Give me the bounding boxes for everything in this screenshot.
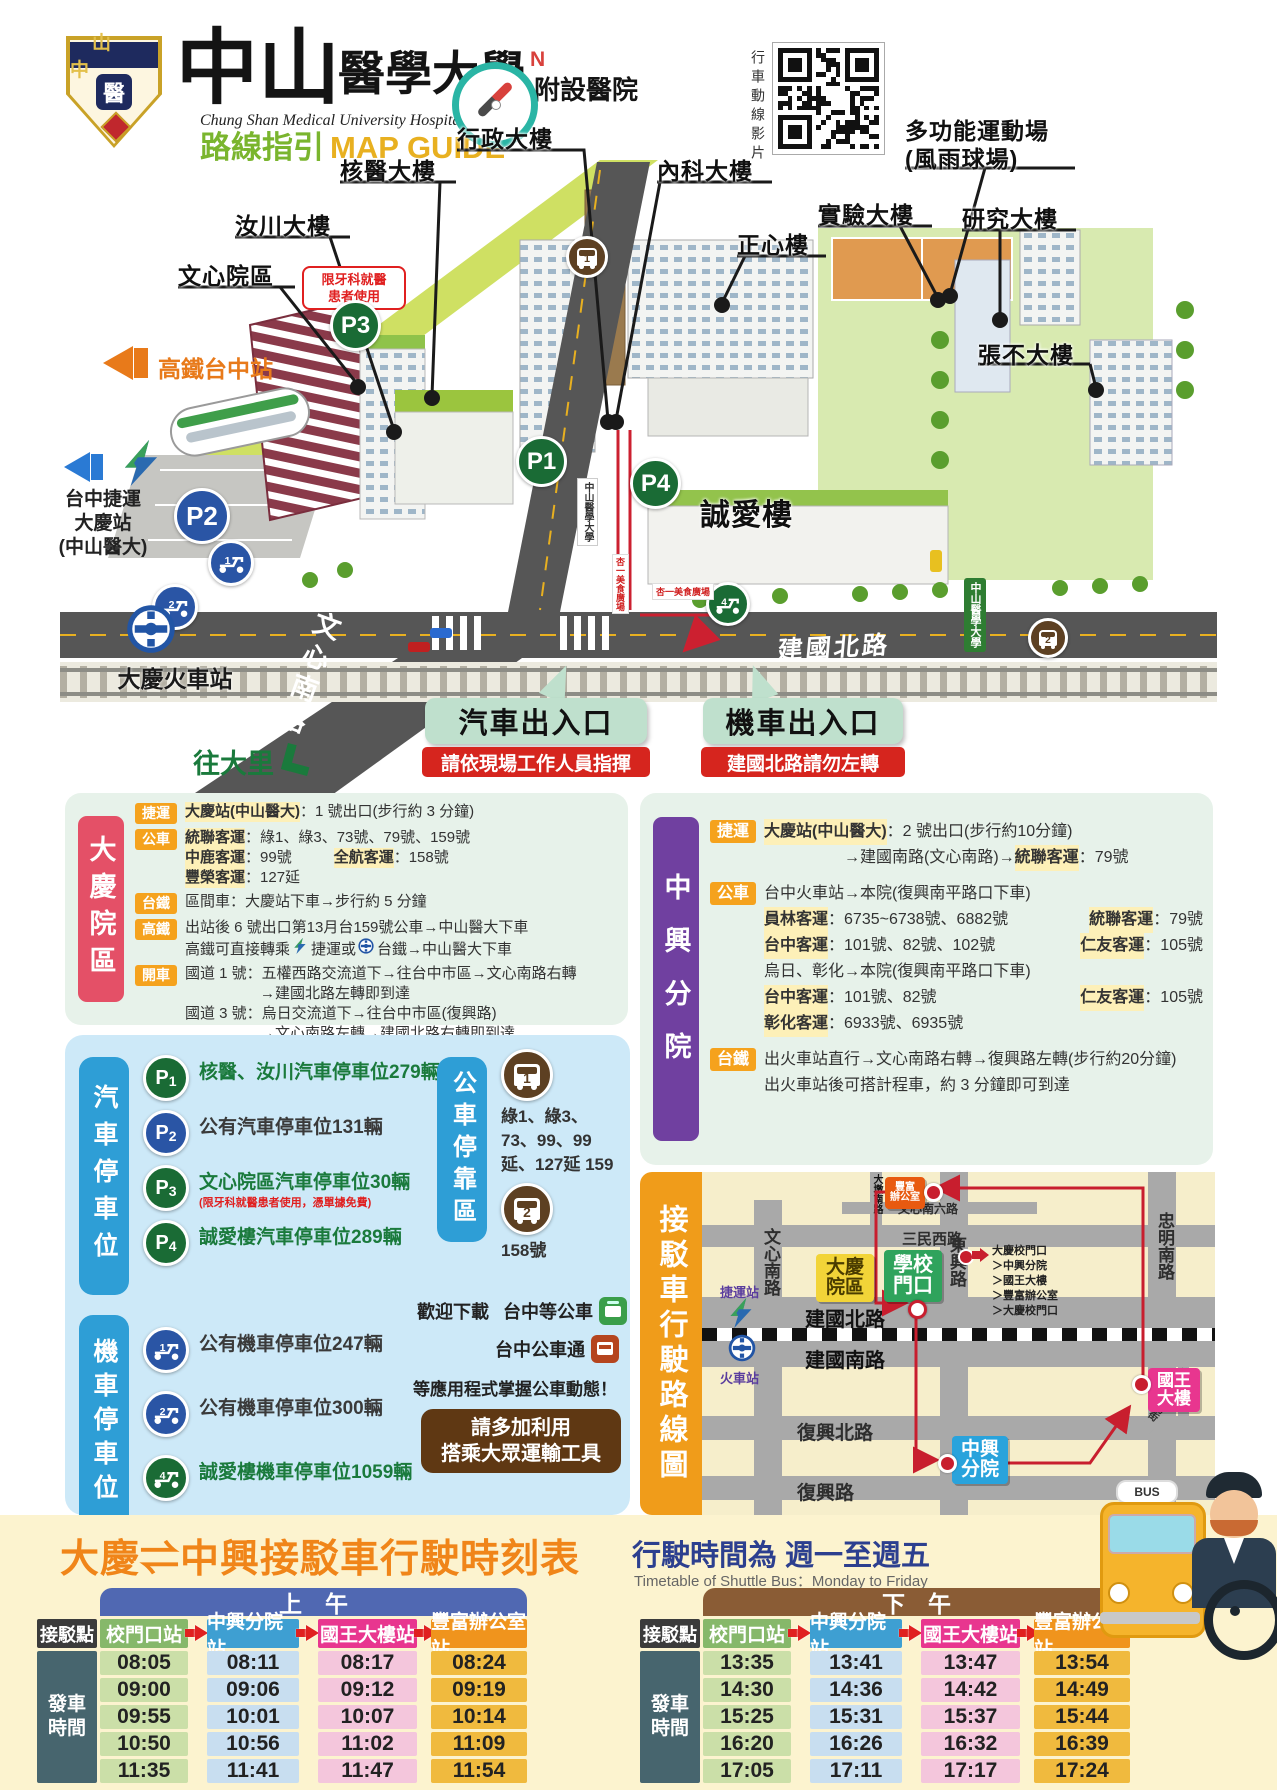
transit-line: →建國南路(文心南路)→統聯客運：79號 <box>764 845 1203 871</box>
parking-p1-marker: P1 <box>516 436 567 487</box>
parking-item-text: 公有汽車停車位131輛 <box>199 1117 383 1139</box>
qr-module <box>874 91 879 96</box>
transit-text: 中鹿客運 <box>185 848 245 868</box>
time-cell: 09:00 <box>100 1678 188 1702</box>
transit-text: 大慶站(中山醫大) <box>185 802 300 822</box>
time-cell: 08:24 <box>431 1651 527 1675</box>
app-icon-bus-waiting <box>599 1297 627 1325</box>
transit-text: 員林客運 <box>764 907 828 933</box>
time-cell: 16:20 <box>703 1732 791 1756</box>
transit-line: 大慶站(中山醫大)：2 號出口(步行約10分鐘) <box>764 819 1203 845</box>
label-admin-building: 行政大樓 <box>457 120 553 154</box>
parking-p3-marker: P3 <box>330 300 381 351</box>
app-icon-bus-pass <box>591 1335 619 1363</box>
transit-text: 仁友客運 <box>1080 933 1144 959</box>
transit-text: 出站後 6 號出口第13月台159號公車→中山醫大下車 <box>185 918 528 938</box>
stop-point-header: 接駁點 <box>640 1619 700 1648</box>
hospital-title-zh-suffix: 附設醫院 <box>534 78 638 104</box>
time-cell: 15:37 <box>921 1705 1020 1729</box>
compass-n-label: N <box>530 48 545 72</box>
time-cell: 11:09 <box>431 1732 527 1756</box>
transit-lines: 區間車：大慶站下車→步行約 5 分鐘 <box>185 892 620 912</box>
station-column-header: 中興分院站 <box>810 1619 902 1648</box>
station-column-header: 校門口站 <box>703 1619 791 1648</box>
departure-line1: 發車 <box>651 1693 689 1717</box>
time-cell: 08:11 <box>207 1651 299 1675</box>
timetable-title: 大慶⇌中興接駁車行駛時刻表 <box>60 1528 580 1584</box>
transit-text: 區間車：大慶站下車→步行約 5 分鐘 <box>185 892 427 912</box>
transit-line: 出站後 6 號出口第13月台159號公車→中山醫大下車 <box>185 918 620 938</box>
time-cell: 17:11 <box>810 1759 902 1783</box>
label-zhangbu-building: 張不大樓 <box>978 336 1074 370</box>
qr-module <box>821 72 826 77</box>
parking-item-text: 公有機車停車位300輛 <box>199 1398 383 1420</box>
bus-stop-2-icon: 2 <box>1028 618 1068 658</box>
car-entrance-note: 請依現場工作人員指揮 <box>422 747 650 777</box>
route-arrow-icon <box>899 1625 923 1641</box>
time-cell: 17:05 <box>703 1759 791 1783</box>
label-nuclear-building: 核醫大樓 <box>340 152 436 186</box>
transit-text: →建國北路左轉即到達 <box>185 984 410 1004</box>
transit-text: ：99號 <box>245 848 292 868</box>
shuttle-route-legend: 大慶校門口＞中興分院＞國王大樓＞豐富辦公室＞大慶校門口 <box>992 1244 1058 1319</box>
station-column-header: 國王大樓站 <box>921 1619 1020 1648</box>
mrt-station-label: 台中捷運大慶站(中山醫大) <box>28 488 178 560</box>
bus-stop-2-marker: 2 <box>1028 618 1068 658</box>
station-column-header: 中興分院站 <box>207 1619 299 1648</box>
transit-text: 大慶站(中山醫大) <box>764 819 887 845</box>
time-cell: 11:54 <box>431 1759 527 1783</box>
transit-row: 高鐵出站後 6 號出口第13月台159號公車→中山醫大下車高鐵可直接轉乘捷運或台… <box>135 918 620 960</box>
transit-row: 公車台中火車站→本院(復興南平路口下車)員林客運：6735~6738號、6882… <box>710 881 1203 1037</box>
transit-lines: 出火車站直行→文心南路右轉→復興路左轉(步行約20分鐘)出火車站後可搭計程車，約… <box>764 1047 1203 1099</box>
parking-info-panel: 汽車停車位 P1核醫、汝川汽車停車位279輛P2公有汽車停車位131輛P3文心院… <box>65 1035 630 1515</box>
time-cell: 10:56 <box>207 1732 299 1756</box>
qr-module <box>826 67 831 72</box>
qr-module <box>826 101 831 106</box>
transit-text: ：127延 <box>245 868 300 888</box>
parking-p3-icon: P3 <box>143 1165 189 1211</box>
transit-text: 國道 1 號：五權西路交流道下→往台中市區→文心南路右轉 <box>185 964 577 984</box>
zhongxing-box-title: 中興分院 <box>653 817 699 1141</box>
parking-item-text: 文心院區汽車停車位30輛(限牙科就醫患者使用，憑單據免費) <box>199 1172 410 1210</box>
car-parking-item: P1核醫、汝川汽車停車位279輛 <box>143 1055 443 1101</box>
driver-figure <box>1188 1472 1277 1642</box>
transit-line: 大慶站(中山醫大)：1 號出口(步行約 3 分鐘) <box>185 802 620 822</box>
transit-text: 台中客運 <box>764 985 828 1011</box>
transit-text: 彰化客運 <box>764 1011 828 1037</box>
transit-text: 台中客運 <box>764 933 828 959</box>
svg-text:4: 4 <box>159 1470 165 1482</box>
legend-item: ＞大慶校門口 <box>992 1304 1058 1319</box>
transit-mode-tag: 開車 <box>135 965 177 986</box>
bus-stop-entry: 2158號 <box>501 1183 623 1263</box>
timetable-afternoon: 下 午接駁點校門口站中興分院站國王大樓站豐富辦公室站發車時間13:3513:41… <box>640 1588 1130 1788</box>
legend-item: 大慶校門口 <box>992 1244 1058 1259</box>
transit-text: ：101號、82號、102號 <box>828 933 995 959</box>
tra-inline-icon <box>358 938 375 955</box>
time-cell: 10:14 <box>431 1705 527 1729</box>
transit-text: 出火車站直行→文心南路右轉→復興路左轉(步行約20分鐘) <box>764 1047 1176 1073</box>
station-column-header: 豐富辦公室站 <box>431 1619 527 1648</box>
transit-line: 高鐵可直接轉乘捷運或台鐵→中山醫大下車 <box>185 938 620 960</box>
transit-row: 台鐵出火車站直行→文心南路右轉→復興路左轉(步行約20分鐘)出火車站後可搭計程車… <box>710 1047 1203 1099</box>
label-wenxin-campus: 文心院區 <box>178 257 274 291</box>
stop-king-building: 國王大樓 <box>1148 1368 1200 1412</box>
qr-module <box>836 72 841 77</box>
qr-module <box>836 82 841 87</box>
time-cell: 11:35 <box>100 1759 188 1783</box>
transit-row: 開車國道 1 號：五權西路交流道下→往台中市區→文心南路右轉 →建國北路左轉即到… <box>135 964 620 1044</box>
time-cell: 14:42 <box>921 1678 1020 1702</box>
svg-text:1: 1 <box>224 555 230 567</box>
parking-item-text: 公有機車停車位247輛 <box>199 1334 383 1356</box>
parking-item-label: 公有機車停車位247輛 <box>199 1334 383 1356</box>
daqing-campus-transit-box: 大慶院區 捷運大慶站(中山醫大)：1 號出口(步行約 3 分鐘)公車統聯客運：綠… <box>65 793 628 1025</box>
transit-text: ：6933號、6935號 <box>828 1011 963 1037</box>
transit-text: 仁友客運 <box>1080 985 1144 1011</box>
tra-railway-icon <box>126 604 176 659</box>
label-sports-field-2: (風雨球場) <box>905 140 1018 174</box>
shuttle-route-legend-icon <box>958 1248 988 1262</box>
transit-text: ：2 號出口(步行約10分鐘) <box>887 819 1073 845</box>
car-entrance-callout: 汽車出入口 <box>425 698 647 744</box>
mrt-direction-arrow <box>64 452 90 482</box>
time-cell: 17:17 <box>921 1759 1020 1783</box>
time-cell: 10:50 <box>100 1732 188 1756</box>
transit-lines: 大慶站(中山醫大)：2 號出口(步行約10分鐘) →建國南路(文心南路)→統聯客… <box>764 819 1203 871</box>
transit-lines: 出站後 6 號出口第13月台159號公車→中山醫大下車高鐵可直接轉乘捷運或台鐵→… <box>185 918 620 960</box>
time-cell: 14:36 <box>810 1678 902 1702</box>
transit-mode-tag: 高鐵 <box>135 919 177 940</box>
hospital-title-zh-main: 中山 <box>176 28 340 110</box>
app-download-suffix: 等應用程式掌握公車動態！ <box>413 1375 617 1400</box>
stop-school-gate: 學校門口 <box>884 1250 942 1302</box>
moto-entrance-callout: 機車出入口 <box>703 698 903 744</box>
moto-parking-item: 4誠愛樓機車停車位1059輛 <box>143 1455 443 1501</box>
bus-sign: BUS <box>1116 1480 1178 1504</box>
map-guide-page: 山中 醫 中山 醫學大學 附設醫院 Chung Shan Medical Uni… <box>0 0 1277 1790</box>
time-cell: 15:25 <box>703 1705 791 1729</box>
tra-station-label: 大慶火車站 <box>90 660 260 694</box>
jianguo-road-label: 建國北路 <box>776 625 892 667</box>
stop-dot-zhongxing <box>938 1454 957 1473</box>
parking-item-text: 核醫、汝川汽車停車位279輛 <box>199 1062 440 1084</box>
moto-parking-item: 1公有機車停車位247輛 <box>143 1327 443 1373</box>
qr-module <box>836 48 841 53</box>
daqing-transit-rows: 捷運大慶站(中山醫大)：1 號出口(步行約 3 分鐘)公車統聯客運：綠1、綠3、… <box>135 802 620 1044</box>
transit-line: →建國北路左轉即到達 <box>185 984 620 1004</box>
transit-row: 捷運大慶站(中山醫大)：1 號出口(步行約 3 分鐘) <box>135 802 620 824</box>
stop-dot-fengfu <box>924 1183 943 1202</box>
car-parking-item: P4誠愛樓汽車停車位289輛 <box>143 1220 443 1266</box>
zhongxing-branch-transit-box: 中興分院 捷運大慶站(中山醫大)：2 號出口(步行約10分鐘) →建國南路(文心… <box>640 793 1213 1165</box>
bus-stop-list: 1綠1、綠3、73、99、99延、127延 1592158號 <box>501 1049 623 1263</box>
label-ruchuan-building: 汝川大樓 <box>235 207 331 241</box>
transit-text: ：1 號出口(步行約 3 分鐘) <box>300 802 474 822</box>
bus-stop-routes: 158號 <box>501 1239 546 1263</box>
time-cell: 08:05 <box>100 1651 188 1675</box>
timetable-schedule-zh: 行駛時間為 週一至週五 <box>632 1532 930 1574</box>
hsr-station-label: 高鐵台中站 <box>158 350 273 384</box>
stop-fengfu-office: 豐富辦公室 <box>885 1177 925 1209</box>
food-court-sign-vertical: 杏一美食廣場 <box>612 554 629 614</box>
shuttle-bus-illustration: BUS <box>1092 1452 1277 1652</box>
station-column-header: 國王大樓站 <box>318 1619 417 1648</box>
time-cell: 09:12 <box>318 1678 417 1702</box>
station-column-header: 校門口站 <box>100 1619 188 1648</box>
time-cell: 09:19 <box>431 1678 527 1702</box>
departure-line2: 時間 <box>651 1717 689 1741</box>
zhongxing-transit-rows: 捷運大慶站(中山醫大)：2 號出口(步行約10分鐘) →建國南路(文心南路)→統… <box>710 809 1203 1099</box>
campus-green-banner: 中山醫學大學 <box>964 578 986 652</box>
moto-entrance-note: 建國北路請勿左轉 <box>701 747 905 777</box>
logo-emblem: 醫 <box>96 74 132 110</box>
hsr-direction-arrow <box>103 346 133 380</box>
transit-text: 統聯客運 <box>1015 845 1079 871</box>
label-internal-medicine-building: 內科大樓 <box>657 152 753 186</box>
bus-stop-1-icon: 1 <box>566 236 608 278</box>
shuttle-train-icon <box>728 1334 756 1367</box>
transit-lines: 國道 1 號：五權西路交流道下→往台中市區→文心南路右轉 →建國北路左轉即到達國… <box>185 964 620 1044</box>
parking-p4-icon: P4 <box>143 1220 189 1266</box>
parking-item-label: 核醫、汝川汽車停車位279輛 <box>199 1062 440 1084</box>
time-cell: 10:01 <box>207 1705 299 1729</box>
app-name-bus-pass: 台中公車通 <box>495 1336 585 1362</box>
time-cell: 11:47 <box>318 1759 417 1783</box>
transit-text: ：101號、82號 <box>828 985 937 1011</box>
mrt-inline-icon <box>292 938 309 955</box>
time-cell: 09:06 <box>207 1678 299 1702</box>
parking-item-label: 文心院區汽車停車位30輛 <box>199 1172 410 1194</box>
label-zhengxin-building: 正心樓 <box>737 226 809 260</box>
parking-item-label: 誠愛樓汽車停車位289輛 <box>199 1227 402 1249</box>
moto-parking-items: 1公有機車停車位247輛2公有機車停車位300輛4誠愛樓機車停車位1059輛 <box>143 1327 443 1501</box>
transit-row: 台鐵區間車：大慶站下車→步行約 5 分鐘 <box>135 892 620 914</box>
parking-p1-icon: P1 <box>143 1055 189 1101</box>
transit-line: 區間車：大慶站下車→步行約 5 分鐘 <box>185 892 620 912</box>
transit-line: 豐榮客運：127延 <box>185 868 620 888</box>
route-arrow-icon <box>185 1625 209 1641</box>
route-arrow-icon <box>788 1625 812 1641</box>
stop-point-header: 接駁點 <box>37 1619 97 1648</box>
transit-text: 捷運或 <box>311 940 356 960</box>
parking-p4-marker: P4 <box>630 458 681 509</box>
parking-p2-marker: P2 <box>174 488 230 544</box>
shuttle-map-title: 接駁車行駛路線圖 <box>640 1172 702 1515</box>
legend-item: ＞中興分院 <box>992 1259 1058 1274</box>
bus-stop-1-icon: 1 <box>501 1049 553 1101</box>
to-dali-arrow-icon <box>281 743 314 776</box>
scooter-2-icon: 2 <box>143 1391 189 1437</box>
transit-line: 台中客運：101號、82號、102號仁友客運：105號 <box>764 933 1203 959</box>
parking-item-label: 誠愛樓機車停車位1059輛 <box>199 1462 412 1484</box>
bus-stop-2-icon: 2 <box>501 1183 553 1235</box>
transit-text: 統聯客運 <box>1089 907 1153 933</box>
shuttle-train-label: 火車站 <box>720 1368 759 1387</box>
time-cell: 09:55 <box>100 1705 188 1729</box>
transit-row: 捷運大慶站(中山醫大)：2 號出口(步行約10分鐘) →建國南路(文心南路)→統… <box>710 819 1203 871</box>
departure-line1: 發車 <box>48 1693 86 1717</box>
car-parking-item: P2公有汽車停車位131輛 <box>143 1110 443 1156</box>
transit-mode-tag: 台鐵 <box>135 893 177 914</box>
car-parking-item: P3文心院區汽車停車位30輛(限牙科就醫患者使用，憑單據免費) <box>143 1165 443 1211</box>
time-cell: 13:41 <box>810 1651 902 1675</box>
bus-stop-entry: 1綠1、綠3、73、99、99延、127延 159 <box>501 1049 623 1177</box>
qr-module <box>788 86 793 91</box>
transit-mode-tag: 公車 <box>710 882 756 905</box>
label-chengai-building: 誠愛樓 <box>700 490 793 534</box>
transit-line: 烏日、彰化→本院(復興南平路口下車) <box>764 959 1203 985</box>
transit-text: 出火車站後可搭計程車，約 3 分鐘即可到達 <box>764 1073 1070 1099</box>
stop-daqing-campus: 大慶院區 <box>816 1254 874 1302</box>
legend-item: ＞豐富辦公室 <box>992 1289 1058 1304</box>
bus-stop-routes: 綠1、綠3、73、99、99延、127延 159 <box>501 1105 623 1177</box>
time-cell: 13:47 <box>921 1651 1020 1675</box>
car-parking-items: P1核醫、汝川汽車停車位279輛P2公有汽車停車位131輛P3文心院區汽車停車位… <box>143 1055 443 1266</box>
transit-line: 出火車站直行→文心南路右轉→復興路左轉(步行約20分鐘) <box>764 1047 1203 1073</box>
svg-text:2: 2 <box>159 1406 165 1418</box>
public-transport-cta: 請多加利用搭乘大眾運輸工具 <box>421 1409 621 1473</box>
time-cell: 14:30 <box>703 1678 791 1702</box>
taichung-mrt-icon <box>118 440 164 491</box>
transit-line: 中鹿客運：99號全航客運：158號 <box>185 848 620 868</box>
time-cell: 15:44 <box>1034 1705 1130 1729</box>
transit-text: ：6735~6738號、6882號 <box>828 907 1008 933</box>
transit-line: 台中客運：101號、82號仁友客運：105號 <box>764 985 1203 1011</box>
time-cell: 16:26 <box>810 1732 902 1756</box>
transit-text: ：79號 <box>1079 845 1129 871</box>
qr-module <box>855 58 869 72</box>
transit-mode-tag: 台鐵 <box>710 1048 756 1071</box>
transit-mode-tag: 捷運 <box>135 803 177 824</box>
label-research-building: 研究大樓 <box>962 200 1058 234</box>
car-parking-label: 汽車停車位 <box>79 1057 129 1295</box>
transit-text: ：105號 <box>1144 933 1203 959</box>
campus-building-sign: 中山醫學大學 <box>577 478 598 546</box>
transit-text: 烏日、彰化→本院(復興南平路口下車) <box>764 959 1031 985</box>
route-arrow-icon <box>296 1625 320 1641</box>
time-cell: 16:39 <box>1034 1732 1130 1756</box>
time-cell: 15:31 <box>810 1705 902 1729</box>
moto-parking-1-marker: 1 <box>208 540 254 586</box>
departure-time-label: 發車時間 <box>640 1651 700 1783</box>
stop-dot-king <box>1132 1375 1151 1394</box>
transit-text: 台中火車站→本院(復興南平路口下車) <box>764 881 1031 907</box>
transit-text: →建國南路(文心南路)→ <box>764 845 1015 871</box>
transit-text: ：綠1、綠3、73號、79號、159號 <box>245 828 470 848</box>
transit-text: 豐榮客運 <box>185 868 245 888</box>
qr-module <box>869 96 874 101</box>
transit-line: 國道 1 號：五權西路交流道下→往台中市區→文心南路右轉 <box>185 964 620 984</box>
time-cell: 16:32 <box>921 1732 1020 1756</box>
transit-lines: 台中火車站→本院(復興南平路口下車)員林客運：6735~6738號、6882號統… <box>764 881 1203 1037</box>
parking-item-label: 公有機車停車位300輛 <box>199 1398 383 1420</box>
label-lab-building: 實驗大樓 <box>818 196 914 230</box>
to-dali-label: 往大里 <box>193 742 311 781</box>
transit-line: 台中火車站→本院(復興南平路口下車) <box>764 881 1203 907</box>
parking-item-label: 公有汽車停車位131輛 <box>199 1117 383 1139</box>
food-court-sign-horizontal: 杏一美食廣場 <box>652 583 714 600</box>
bus-stop-1-marker: 1 <box>566 236 608 278</box>
svg-text:1: 1 <box>159 1342 165 1354</box>
scooter-1-icon: 1 <box>143 1327 189 1373</box>
departure-line2: 時間 <box>48 1717 86 1741</box>
transit-text: 全航客運 <box>334 848 394 868</box>
time-cell: 13:54 <box>1034 1651 1130 1675</box>
time-cell: 08:17 <box>318 1651 417 1675</box>
stop-dot-school <box>908 1300 927 1319</box>
transit-text: ：105號 <box>1144 985 1203 1011</box>
moto-parking-label: 機車停車位 <box>79 1315 129 1530</box>
transit-line: 統聯客運：綠1、綠3、73號、79號、159號 <box>185 828 620 848</box>
bus-area-label: 公車停靠區 <box>437 1057 487 1242</box>
transit-text: 統聯客運 <box>185 828 245 848</box>
transit-lines: 大慶站(中山醫大)：1 號出口(步行約 3 分鐘) <box>185 802 620 822</box>
logo-badge-text: 山中 <box>70 42 158 68</box>
stop-zhongxing-branch: 中興分院 <box>952 1436 1008 1484</box>
transit-text: 國道 3 號：烏日交流道下→往台中市區(復興路) <box>185 1004 497 1024</box>
qr-module <box>788 58 802 72</box>
parking-p2-icon: P2 <box>143 1110 189 1156</box>
transit-line: 彰化客運：6933號、6935號 <box>764 1011 1203 1037</box>
transit-text: ：79號 <box>1153 907 1203 933</box>
time-cell: 13:35 <box>703 1651 791 1675</box>
legend-item: ＞國王大樓 <box>992 1274 1058 1289</box>
scooter-4-icon: 4 <box>143 1455 189 1501</box>
parking-item-text: 誠愛樓汽車停車位289輛 <box>199 1227 402 1249</box>
transit-line: 國道 3 號：烏日交流道下→往台中市區(復興路) <box>185 1004 620 1024</box>
parking-item-text: 誠愛樓機車停車位1059輛 <box>199 1462 412 1484</box>
scooter-1-icon: 1 <box>208 540 254 586</box>
transit-text: ：158號 <box>394 848 449 868</box>
daqing-box-title: 大慶院區 <box>78 816 124 1002</box>
departure-time-label: 發車時間 <box>37 1651 97 1783</box>
transit-text: 台鐵→中山醫大下車 <box>377 940 512 960</box>
time-cell: 17:24 <box>1034 1759 1130 1783</box>
parking-item-note: (限牙科就醫患者使用，憑單據免費) <box>199 1194 410 1210</box>
moto-parking-item: 2公有機車停車位300輛 <box>143 1391 443 1437</box>
time-cell: 14:49 <box>1034 1678 1130 1702</box>
time-cell: 11:02 <box>318 1732 417 1756</box>
app-download-line1: 歡迎下載 台中等公車 <box>417 1297 627 1325</box>
transit-mode-tag: 公車 <box>135 829 177 850</box>
transit-line: 員林客運：6735~6738號、6882號統聯客運：79號 <box>764 907 1203 933</box>
transit-text: 高鐵可直接轉乘 <box>185 940 290 960</box>
transit-lines: 統聯客運：綠1、綠3、73號、79號、159號中鹿客運：99號全航客運：158號… <box>185 828 620 888</box>
time-cell: 10:07 <box>318 1705 417 1729</box>
app-name-bus-waiting: 台中等公車 <box>503 1298 593 1324</box>
shuttle-mrt-icon <box>726 1298 756 1333</box>
app-download-line2: 台中公車通 <box>495 1335 619 1363</box>
time-cell: 11:41 <box>207 1759 299 1783</box>
svg-text:4: 4 <box>722 597 728 608</box>
transit-row: 公車統聯客運：綠1、綠3、73號、79號、159號中鹿客運：99號全航客運：15… <box>135 828 620 888</box>
transit-mode-tag: 捷運 <box>710 820 756 843</box>
transit-line: 出火車站後可搭計程車，約 3 分鐘即可到達 <box>764 1073 1203 1099</box>
timetable-morning: 上 午接駁點校門口站中興分院站國王大樓站豐富辦公室站發車時間08:0508:11… <box>37 1588 527 1788</box>
